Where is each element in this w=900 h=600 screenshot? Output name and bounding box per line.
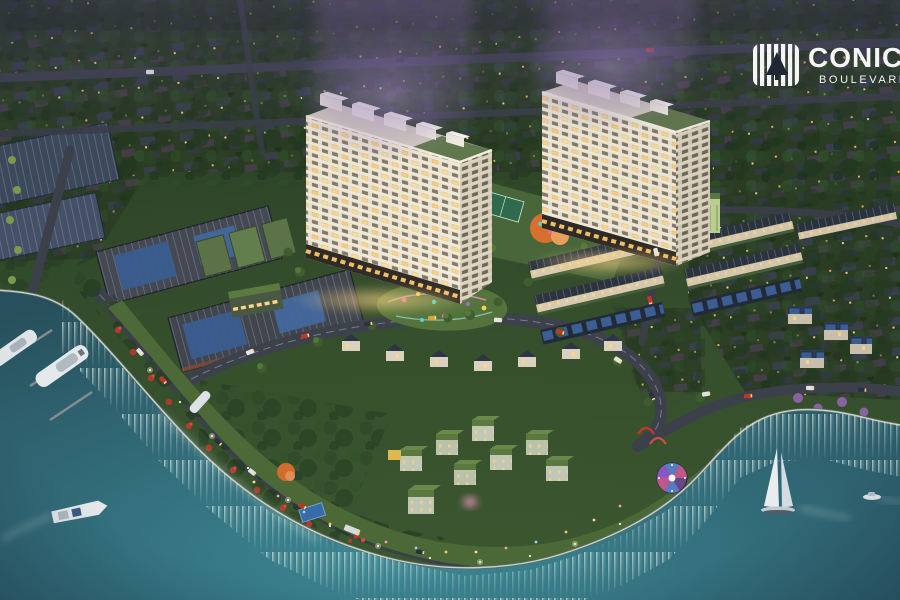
scene-svg [0,0,900,600]
aerial-masterplan-render: CONIC BOULEVARD [0,0,900,600]
brand-tagline: BOULEVARD [819,74,900,86]
vignette [0,0,900,600]
brand-logo: CONIC BOULEVARD [753,44,900,86]
brand-logo-icon [753,44,799,86]
brand-name: CONIC [808,44,900,71]
